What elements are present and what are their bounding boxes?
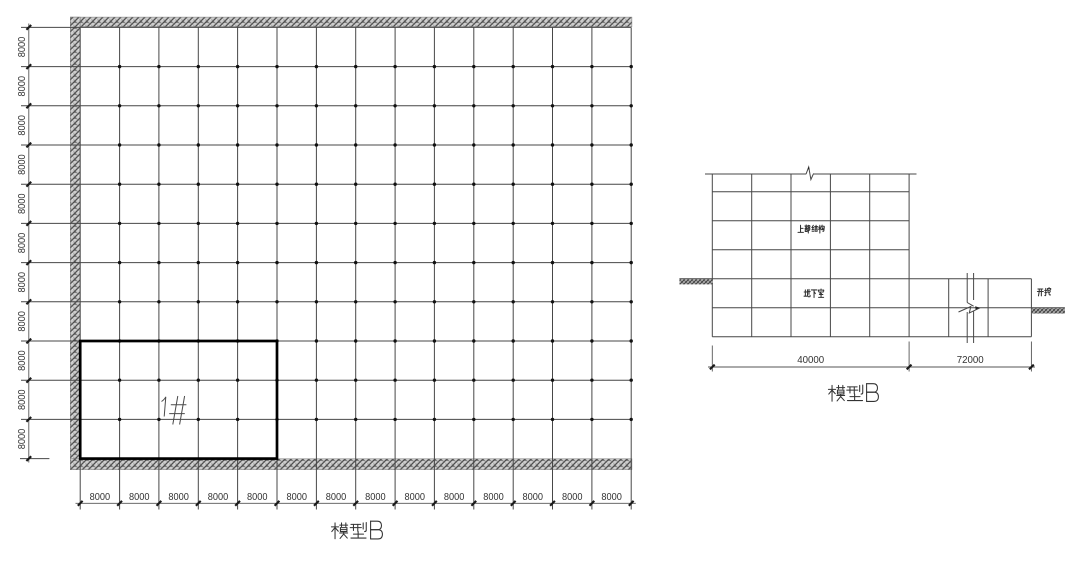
svg-text:8000: 8000: [16, 389, 28, 410]
svg-text:8000: 8000: [326, 491, 347, 503]
svg-text:8000: 8000: [16, 311, 28, 332]
svg-text:8000: 8000: [129, 491, 150, 503]
svg-text:8000: 8000: [365, 491, 386, 503]
svg-text:8000: 8000: [16, 350, 28, 371]
svg-text:8000: 8000: [286, 491, 307, 503]
svg-text:8000: 8000: [16, 272, 28, 293]
svg-text:8000: 8000: [247, 491, 268, 503]
svg-text:40000: 40000: [797, 355, 824, 366]
svg-text:8000: 8000: [208, 491, 229, 503]
svg-text:72000: 72000: [957, 355, 984, 366]
svg-text:8000: 8000: [168, 491, 189, 503]
svg-text:8000: 8000: [16, 115, 28, 136]
svg-text:8000: 8000: [562, 491, 583, 503]
svg-text:8000: 8000: [16, 37, 28, 58]
svg-text:8000: 8000: [444, 491, 465, 503]
svg-text:8000: 8000: [16, 76, 28, 97]
svg-text:8000: 8000: [16, 233, 28, 254]
svg-text:8000: 8000: [523, 491, 544, 503]
svg-text:8000: 8000: [16, 154, 28, 175]
svg-text:8000: 8000: [90, 491, 111, 503]
svg-text:8000: 8000: [16, 429, 28, 450]
svg-text:8000: 8000: [405, 491, 426, 503]
svg-text:8000: 8000: [601, 491, 622, 503]
svg-text:8000: 8000: [483, 491, 504, 503]
svg-text:8000: 8000: [16, 193, 28, 214]
